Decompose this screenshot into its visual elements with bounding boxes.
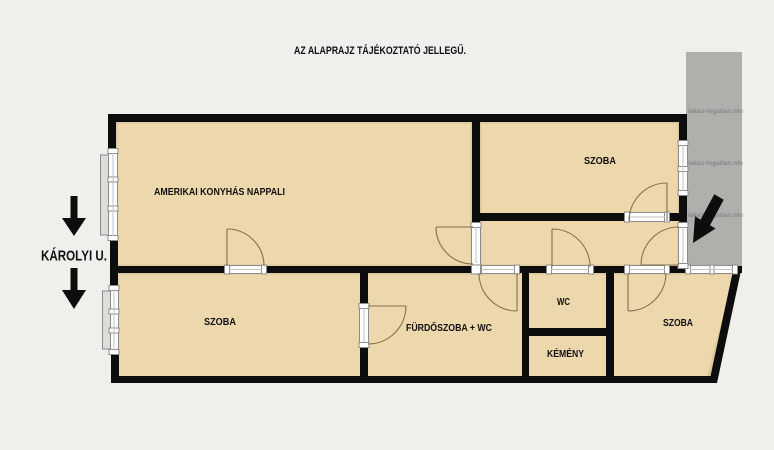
svg-text:KÉMÉNY: KÉMÉNY <box>547 347 584 360</box>
svg-text:AMERIKAI KONYHÁS NAPPALI: AMERIKAI KONYHÁS NAPPALI <box>154 185 285 198</box>
svg-text:WC: WC <box>557 297 570 308</box>
svg-text:SZOBA: SZOBA <box>663 318 693 329</box>
svg-text:AZ ALAPRAJZ TÁJÉKOZTATÓ JELLEG: AZ ALAPRAJZ TÁJÉKOZTATÓ JELLEGŰ. <box>294 44 466 57</box>
svg-text:SZOBA: SZOBA <box>204 317 236 328</box>
svg-text:lakas-ingatlan.nfo: lakas-ingatlan.nfo <box>688 108 743 115</box>
svg-text:FÜRDŐSZOBA + WC: FÜRDŐSZOBA + WC <box>406 321 492 334</box>
svg-text:KÁROLYI U.: KÁROLYI U. <box>41 248 107 265</box>
svg-text:lakas-ingatlan.nfo: lakas-ingatlan.nfo <box>688 160 743 167</box>
svg-text:SZOBA: SZOBA <box>584 156 616 167</box>
